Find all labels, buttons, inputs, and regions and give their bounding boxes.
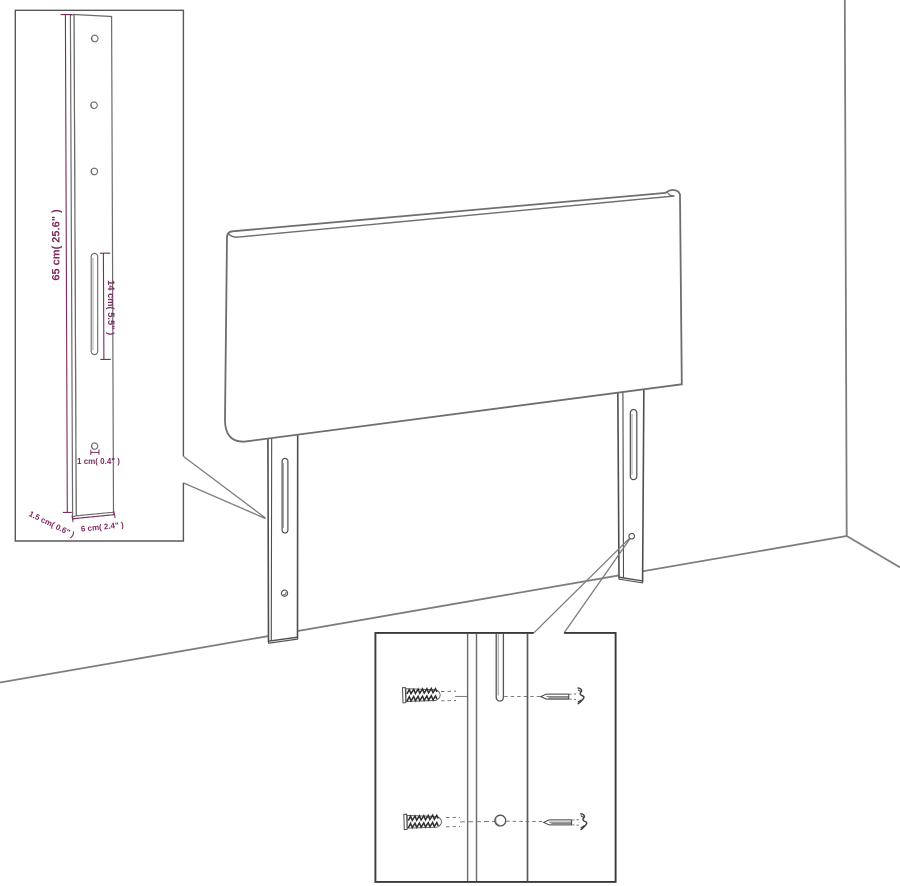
- svg-text:1 cm( 0.4" ): 1 cm( 0.4" ): [77, 457, 120, 466]
- svg-text:14 cm( 5.5" ): 14 cm( 5.5" ): [106, 280, 116, 335]
- svg-text:65 cm( 25.6" ): 65 cm( 25.6" ): [51, 209, 63, 281]
